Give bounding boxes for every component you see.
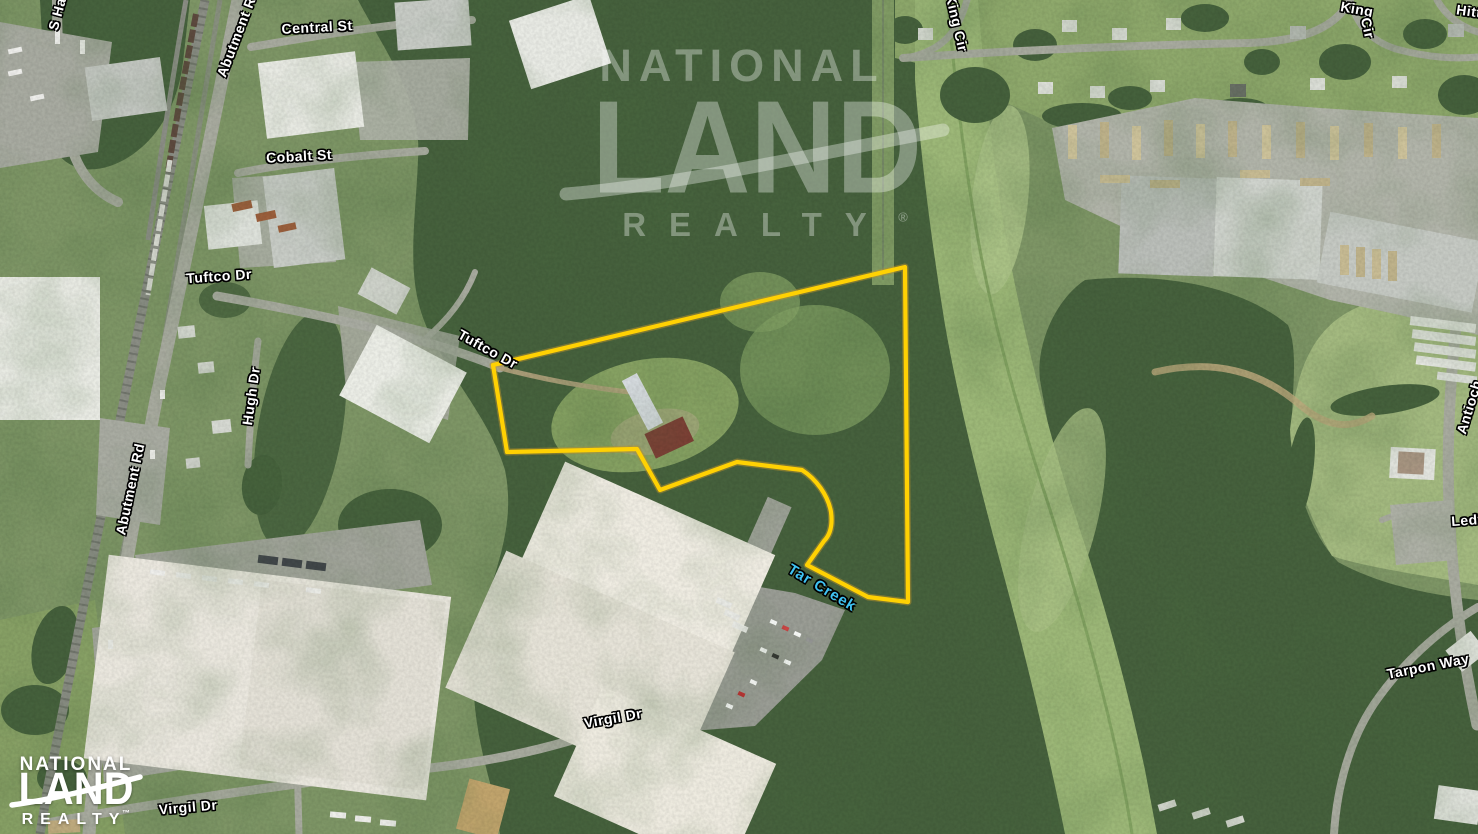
property-aerial-map: NATIONAL LAND REALTY ® S Ha Abutment R C… (0, 0, 1478, 834)
grain-texture (0, 0, 1478, 834)
satellite-imagery (0, 0, 1478, 834)
